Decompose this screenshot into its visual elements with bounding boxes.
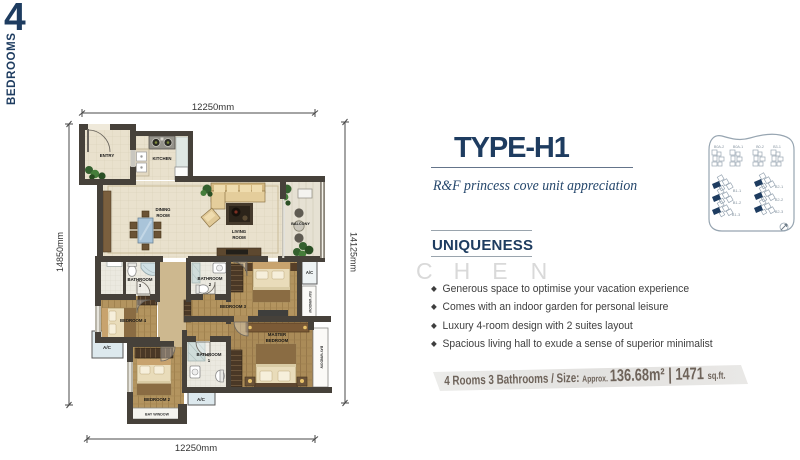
svg-text:B1-2: B1-2 [733,200,742,205]
svg-text:DINING: DINING [155,207,171,212]
svg-text:BEDROOM 2: BEDROOM 2 [144,397,171,402]
svg-text:12250mm: 12250mm [175,443,217,454]
svg-text:B2-3: B2-3 [775,209,784,214]
svg-text:ROOM: ROOM [156,213,170,218]
svg-text:BEDROOM 4: BEDROOM 4 [120,318,147,323]
svg-text:KITCHEN: KITCHEN [152,156,171,161]
svg-text:BEDROOM 3: BEDROOM 3 [220,304,247,309]
svg-text:B2-2: B2-2 [775,197,784,202]
svg-text:BEDROOM: BEDROOM [266,338,289,343]
svg-text:BATHROOM: BATHROOM [198,276,223,281]
svg-text:ROOM: ROOM [232,235,246,240]
svg-text:BATHROOM: BATHROOM [197,352,222,357]
svg-text:B0A-1: B0A-1 [733,145,743,149]
svg-text:A/C: A/C [103,345,112,350]
svg-text:A/C: A/C [197,397,206,402]
svg-text:MASTER: MASTER [268,332,287,337]
svg-text:A/C: A/C [306,270,313,275]
svg-text:B1-1: B1-1 [733,188,742,193]
svg-text:BATHROOM: BATHROOM [128,277,153,282]
svg-text:12250mm: 12250mm [192,102,234,113]
svg-text:14850mm: 14850mm [55,232,65,272]
svg-text:LIVING: LIVING [232,229,247,234]
svg-text:BAY WINDOW: BAY WINDOW [145,413,170,417]
svg-text:B0-2: B0-2 [756,145,764,149]
svg-text:BAY WINDOW: BAY WINDOW [320,346,324,369]
svg-text:BAY WINDOW: BAY WINDOW [308,291,312,312]
svg-text:14125mm: 14125mm [349,232,359,272]
svg-text:BALCONY: BALCONY [291,222,310,226]
svg-text:B3-1: B3-1 [773,145,781,149]
svg-text:B0A-2: B0A-2 [714,145,724,149]
svg-text:ENTRY: ENTRY [100,153,115,158]
svg-text:B2-1: B2-1 [775,184,784,189]
